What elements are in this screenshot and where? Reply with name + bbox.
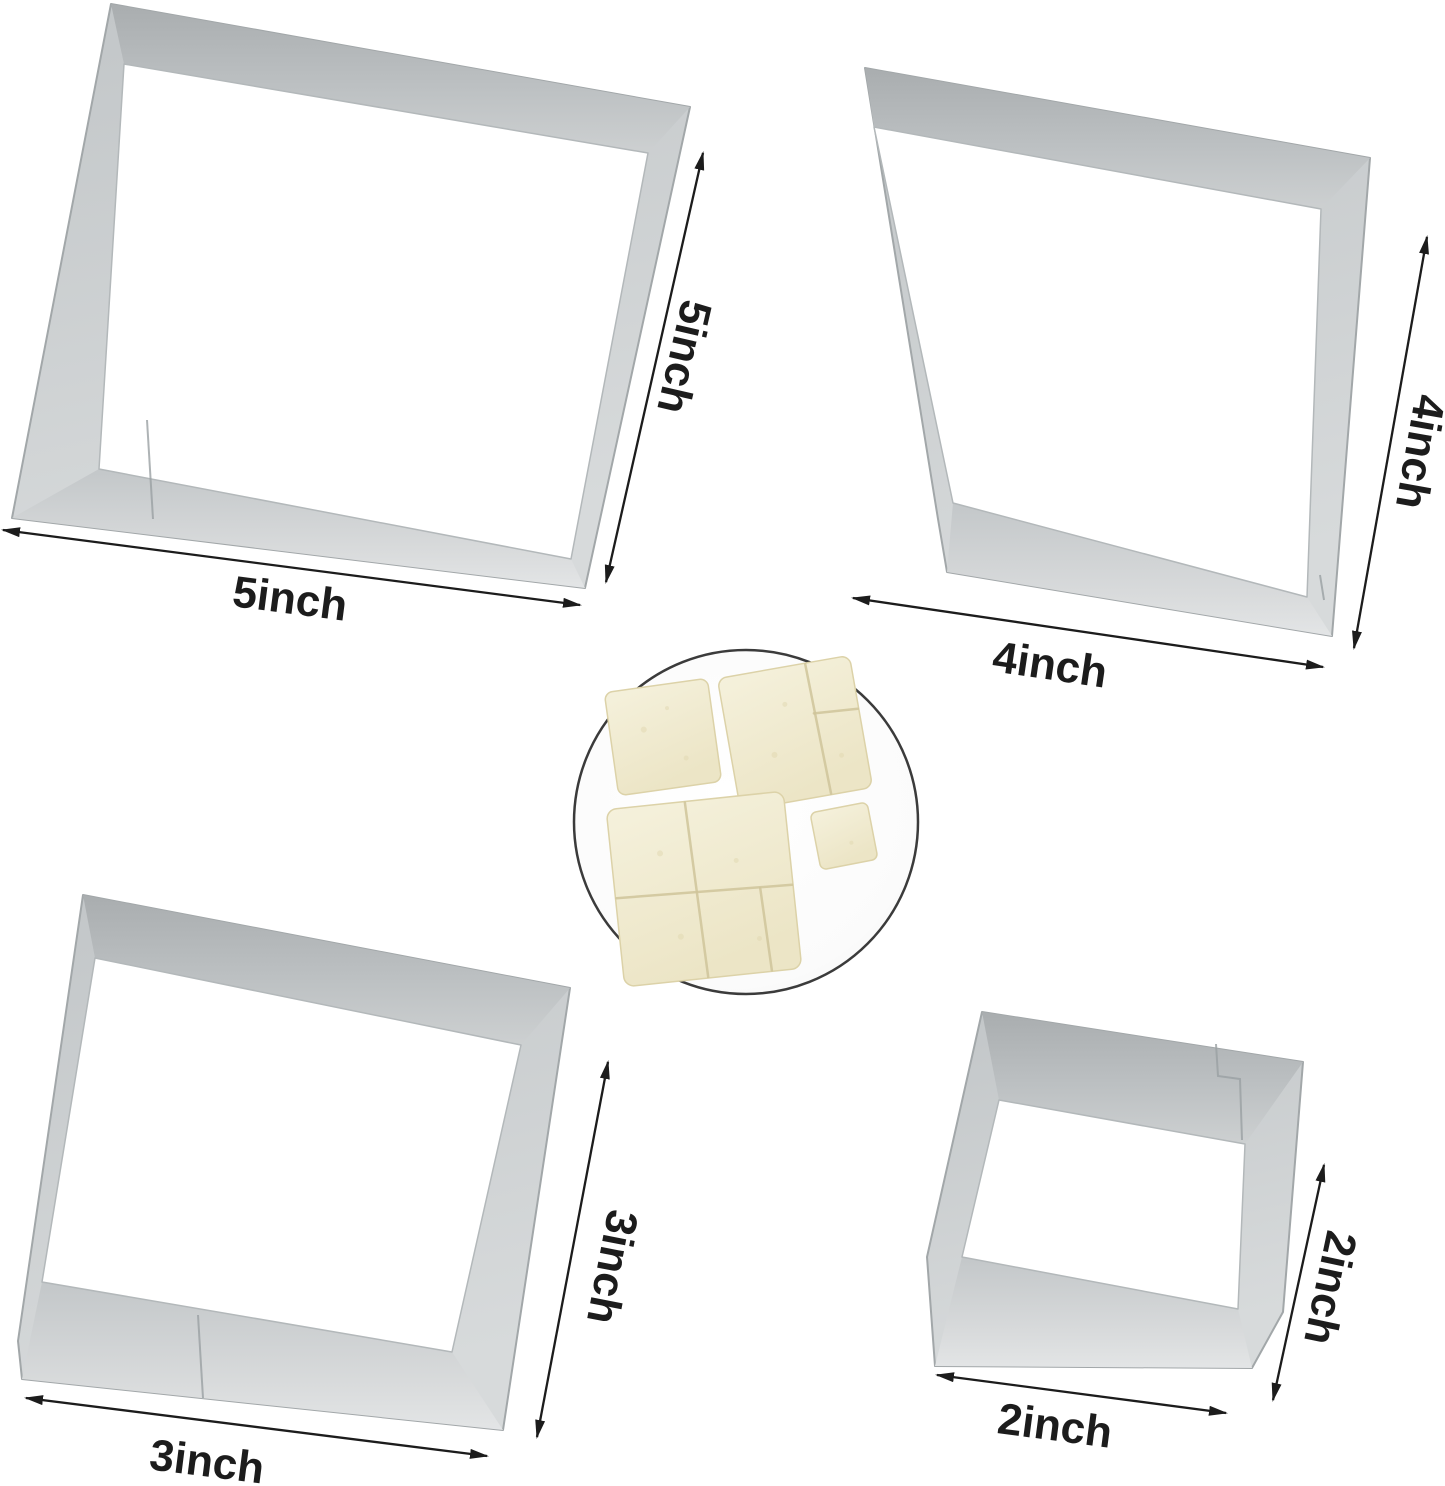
cutter-5inch [12,4,690,588]
dim-label-2inch-height: 2inch [1294,1227,1366,1350]
dim-label-4inch-width: 4inch [990,632,1111,697]
bread-slice-2in [810,802,878,870]
dim-label-5inch-width: 5inch [230,567,350,630]
dim-label-5inch-height: 5inch [647,296,721,419]
dim-label-3inch-height: 3inch [577,1206,647,1328]
cutter-2inch [927,1012,1303,1368]
product-photo: 5inch 5inch 4inch 4inch 3inch 3inch 2inc… [0,0,1445,1486]
dim-label-3inch-width: 3inch [147,1430,267,1486]
cutter-4inch [865,68,1370,636]
bread-slice-3in [604,678,721,795]
dim-label-2inch-width: 2inch [995,1394,1115,1458]
product-photo-canvas: 5inch 5inch 4inch 4inch 3inch 3inch 2inc… [0,0,1445,1486]
dim-label-4inch-height: 4inch [1386,391,1445,513]
bread-slice-5in [606,791,802,987]
bread-slice-4in [717,655,872,810]
cutter-3inch [18,895,570,1430]
bread-inset [574,650,918,994]
